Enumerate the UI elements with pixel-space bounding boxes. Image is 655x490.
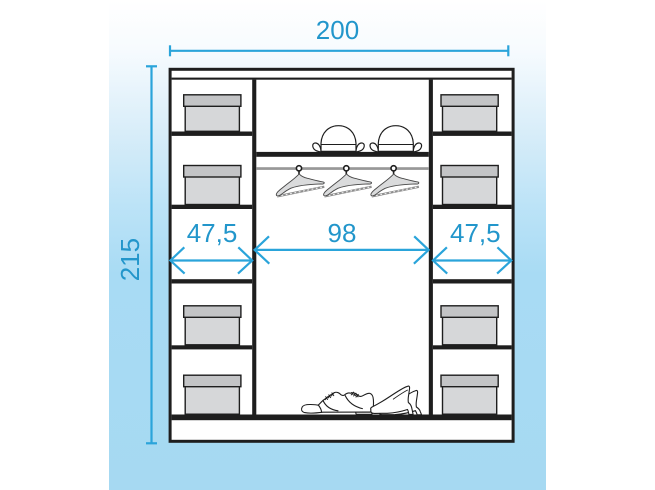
svg-text:98: 98: [328, 218, 357, 248]
svg-text:200: 200: [316, 15, 359, 45]
svg-text:47,5: 47,5: [187, 218, 238, 248]
svg-text:47,5: 47,5: [450, 218, 501, 248]
svg-text:215: 215: [115, 238, 145, 281]
